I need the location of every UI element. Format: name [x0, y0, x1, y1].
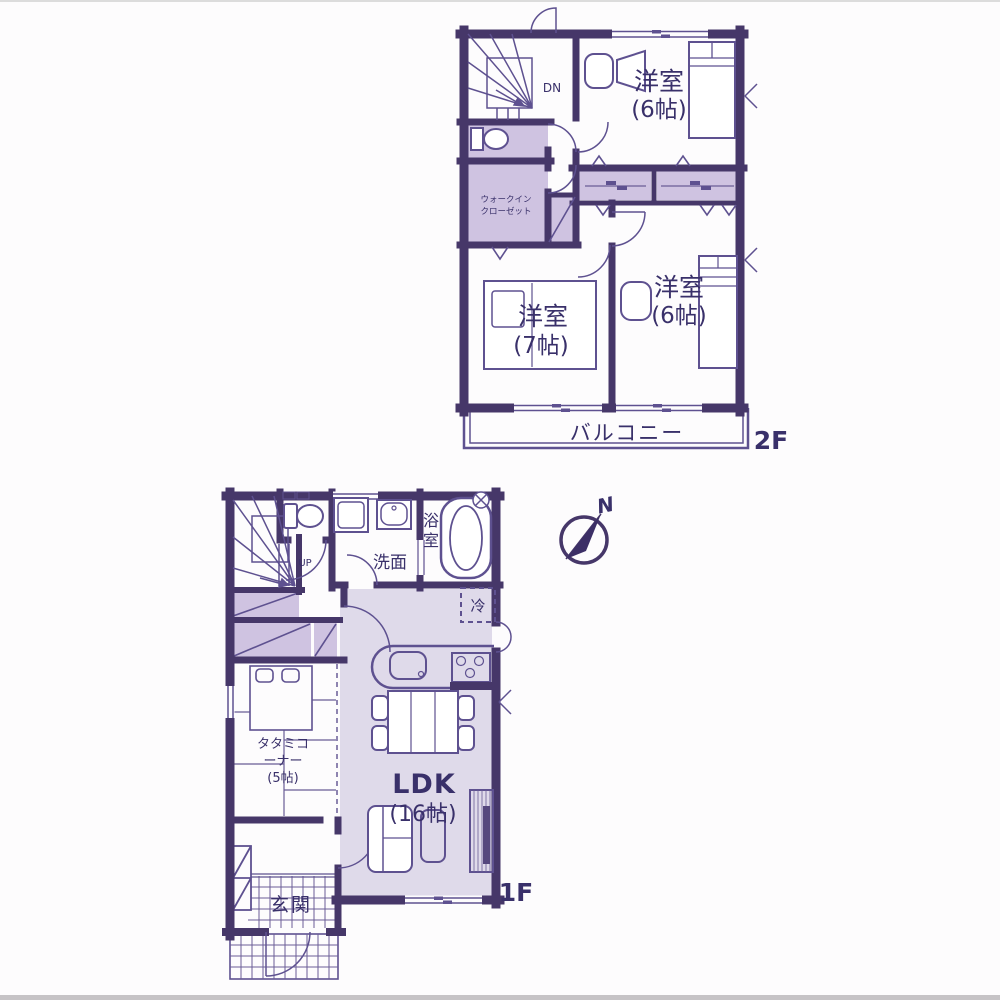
toilet-icon-1f — [284, 504, 323, 528]
chair-icon-right — [621, 282, 651, 320]
first-floor-plan: 冷 — [226, 492, 534, 980]
washer-icon — [334, 498, 368, 532]
wic-label-line1: ウォークイン — [480, 195, 531, 205]
bedroom-right-name: 洋室 — [654, 273, 704, 302]
chair-icon — [458, 696, 474, 720]
tatami-label-line1: タタミコ — [257, 737, 309, 752]
compass-icon: N — [561, 492, 616, 563]
bedroom-left-name: 洋室 — [518, 302, 568, 331]
washroom-label: 洗面 — [373, 553, 407, 573]
second-floor-plan: DN 洋室 (6帖) ウォークイン クローゼット 洋室 (7帖) 洋室 (6帖)… — [460, 8, 788, 455]
tatami-label-line2: ーナー — [263, 754, 302, 769]
bath-label-char2: 室 — [423, 531, 439, 550]
floor1-label: 1F — [499, 878, 533, 907]
bedroom-right-size: (6帖) — [651, 303, 707, 329]
futon-icon — [250, 666, 312, 730]
scan-edge-bottom — [0, 995, 1000, 1000]
balcony-label: バルコニー — [570, 421, 685, 445]
tatami-label-line3: (5帖) — [267, 771, 298, 786]
bedroom-top-name: 洋室 — [634, 67, 684, 96]
bedroom-left-size: (7帖) — [513, 333, 569, 359]
bed-icon-top — [689, 42, 735, 138]
chair-icon — [372, 726, 388, 750]
floorplan-svg: DN 洋室 (6帖) ウォークイン クローゼット 洋室 (7帖) 洋室 (6帖)… — [0, 0, 1000, 1000]
shoe-cabinet — [233, 846, 251, 910]
floorplan-image: DN 洋室 (6帖) ウォークイン クローゼット 洋室 (7帖) 洋室 (6帖)… — [0, 0, 1000, 1000]
scan-edge-top — [0, 0, 1000, 2]
chair-icon — [372, 696, 388, 720]
ldk-size-label: (16帖) — [389, 802, 456, 827]
toilet-icon-2f — [471, 128, 508, 150]
stairs-dn-label: DN — [543, 81, 561, 95]
bathtub-icon — [441, 492, 491, 578]
stairs-up-label: UP — [298, 558, 311, 569]
bath-label-char1: 浴 — [423, 511, 439, 530]
staircase-down-2f — [468, 34, 532, 120]
dining-table-icon — [372, 691, 474, 753]
compass-north-label: N — [595, 492, 617, 519]
fridge-label: 冷 — [470, 597, 485, 615]
floor2-label: 2F — [754, 426, 788, 455]
washbasin-icon — [377, 500, 411, 529]
wic-label-line2: クローゼット — [480, 206, 531, 217]
entrance-label: 玄関 — [270, 894, 312, 916]
chair-icon — [458, 726, 474, 750]
ldk-name-label: LDK — [392, 769, 456, 800]
bedroom-top-size: (6帖) — [631, 97, 687, 123]
